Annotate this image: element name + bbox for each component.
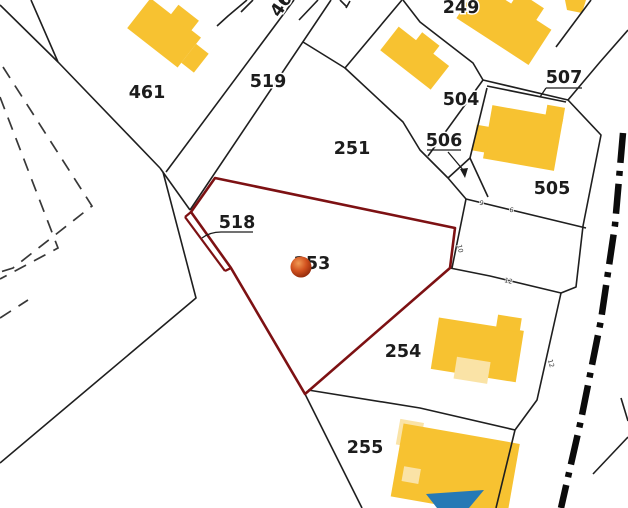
parcel-label-507: 507 [546, 68, 583, 88]
dimension-label: 6 [509, 206, 515, 215]
building-251 [380, 19, 455, 90]
parcel-label-251: 251 [334, 139, 371, 159]
parcel-label-519: 519 [250, 72, 287, 92]
leader-506-arrowhead [460, 168, 468, 178]
parcel-label-505: 505 [534, 179, 571, 199]
dimension-label: 9 [479, 199, 485, 208]
parcel-label-506: 506 [426, 131, 463, 151]
dimension-label: 12 [503, 276, 513, 286]
building-461 [127, 0, 221, 77]
building-505 [471, 93, 565, 171]
parcel-label-255: 255 [347, 438, 384, 458]
parcel-label-249: 249 [443, 0, 480, 18]
dimension-label: 10 [455, 244, 465, 254]
dashed-track [0, 67, 92, 318]
building-254 [430, 306, 526, 389]
selected-point-marker[interactable] [291, 257, 312, 278]
parcel-label-518: 518 [219, 213, 256, 233]
parcel-label-504: 504 [443, 90, 480, 110]
building-footprints [127, 0, 586, 508]
parcel-label-254: 254 [385, 342, 422, 362]
dimension-label: 12 [546, 358, 556, 368]
parcel-label-46: 46 [267, 0, 297, 21]
map-canvas[interactable]: 461 46 519 251 249 504 507 506 505 518 2… [0, 0, 628, 508]
parcel-label-461: 461 [129, 83, 166, 103]
